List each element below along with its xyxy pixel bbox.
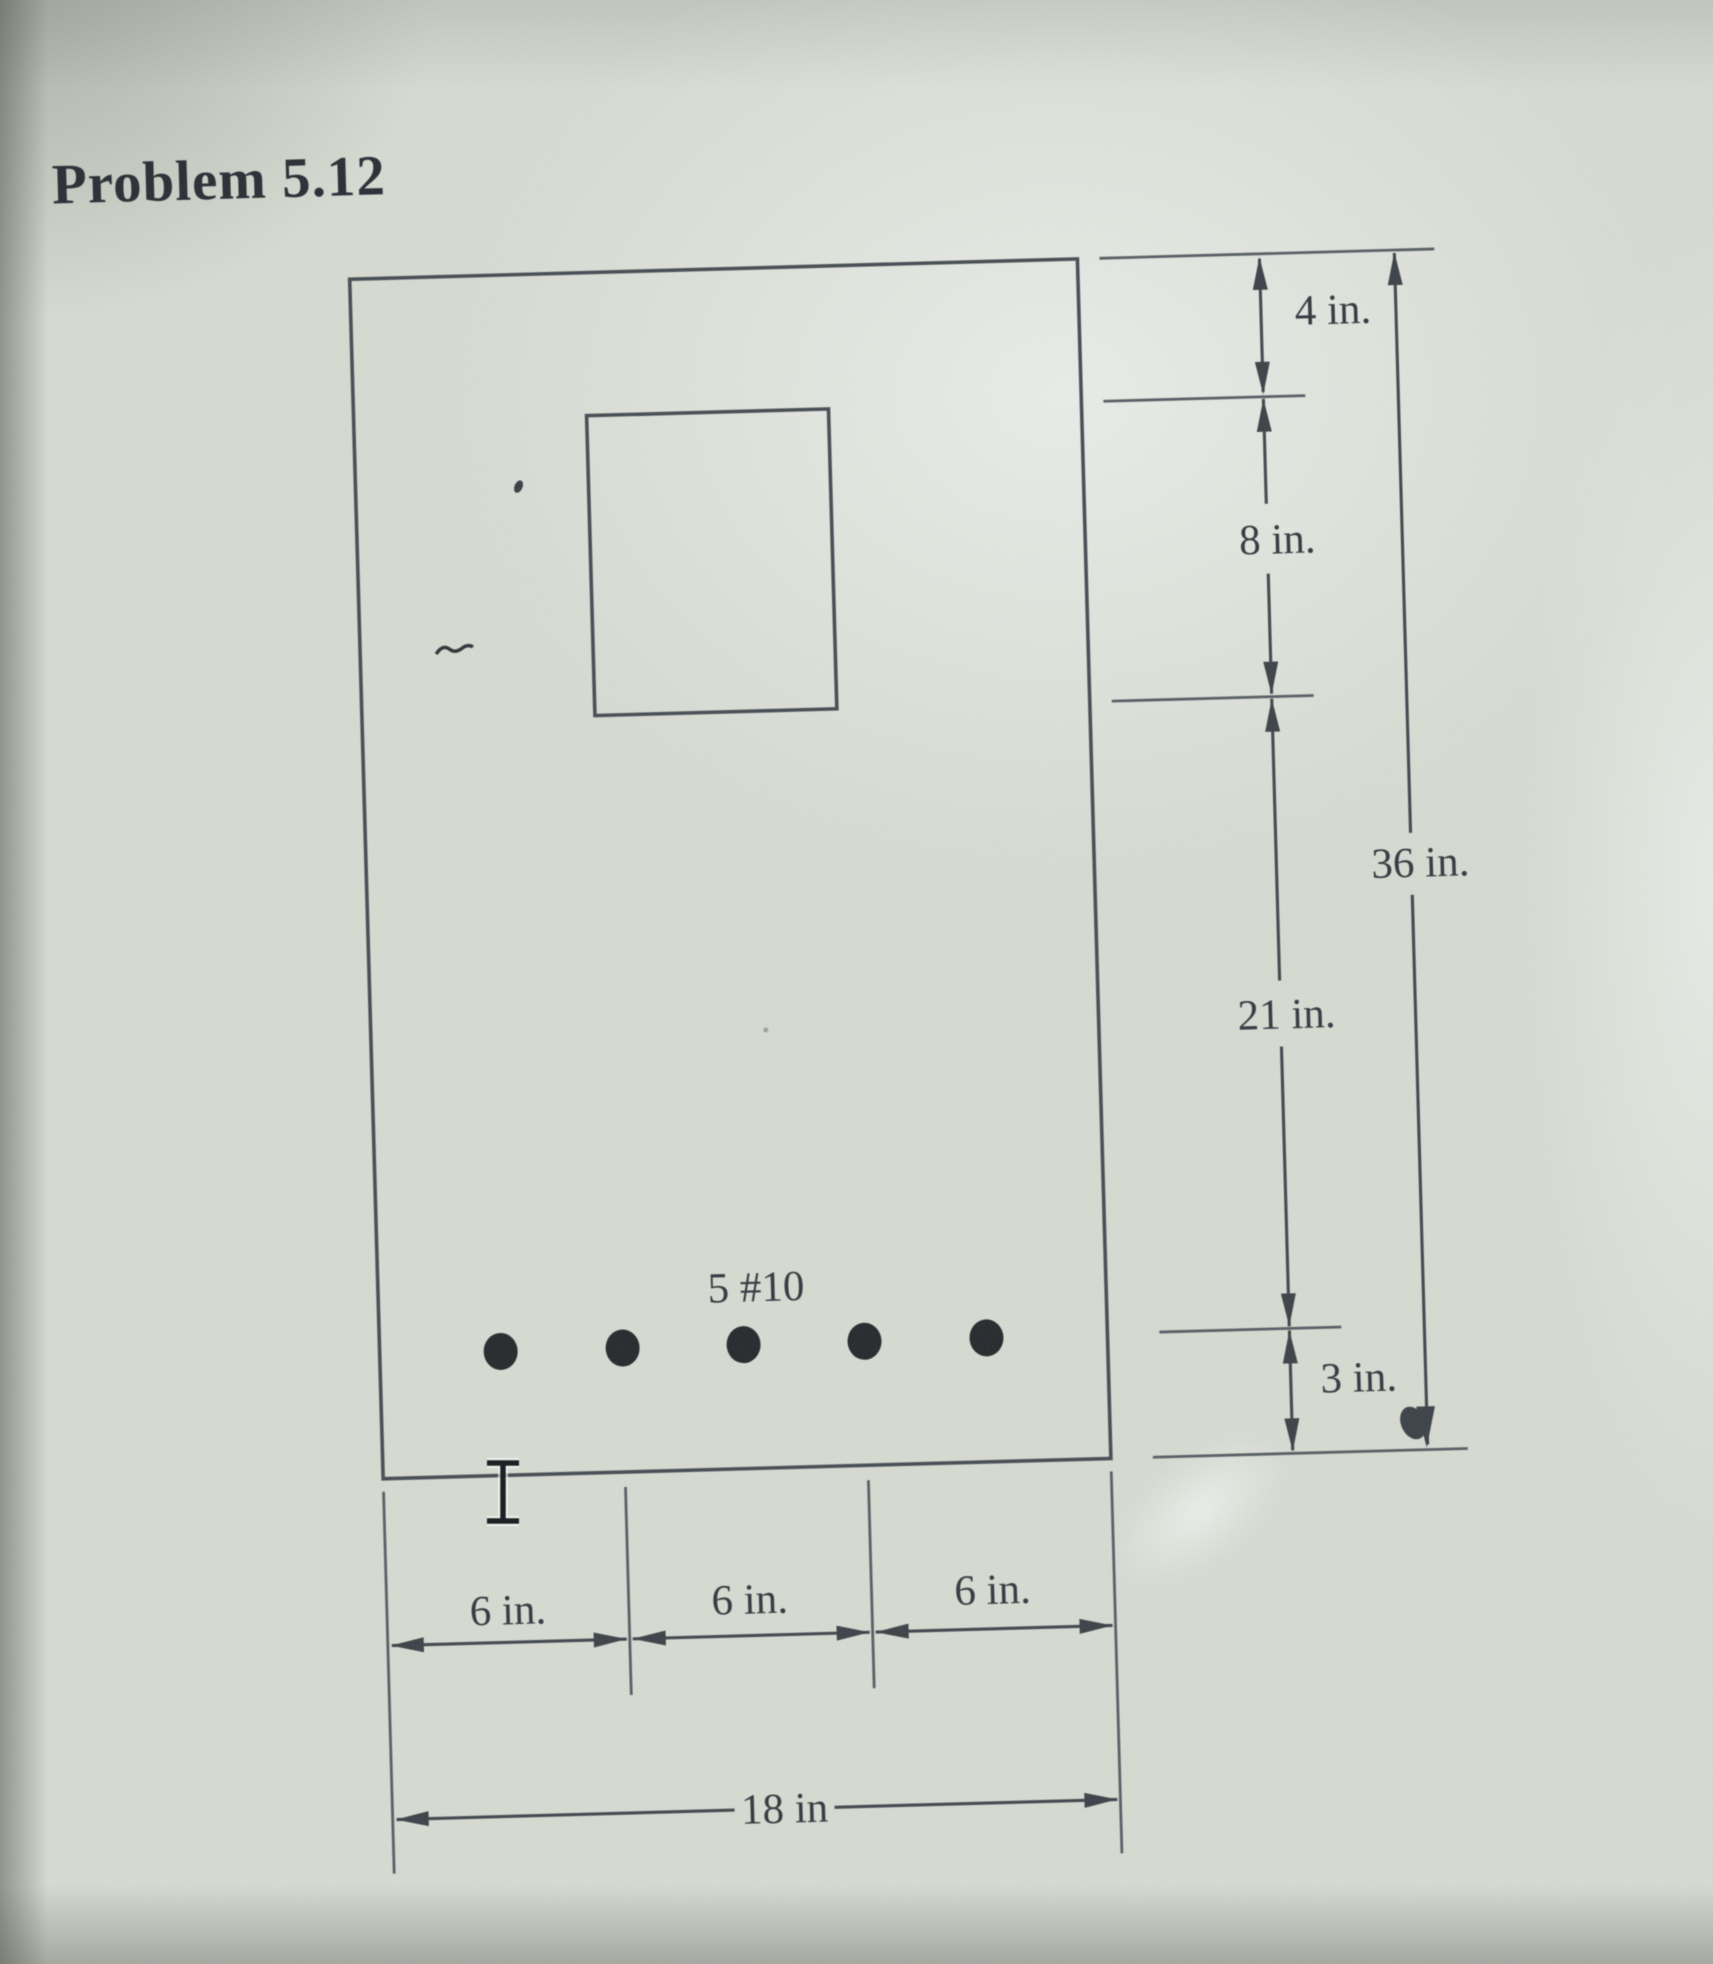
squiggle-artifact — [436, 646, 473, 654]
arrowhead-right-icon — [594, 1632, 627, 1648]
arrowhead-up-icon — [1256, 399, 1272, 432]
extension-line-opening-top — [1103, 396, 1305, 402]
rebar-dot — [483, 1332, 518, 1370]
opening-outline — [587, 409, 837, 716]
textbook-figure-photo: Problem 5.12 5 #10 — [0, 0, 1713, 1964]
arrowhead-down-icon — [1255, 362, 1271, 395]
figure-title: Problem 5.12 — [51, 144, 387, 216]
speck-artifact — [512, 479, 525, 494]
tick-line-6in — [626, 1487, 632, 1695]
dim-label-6in-1: 6 in. — [469, 1586, 547, 1635]
arrowhead-right-icon — [836, 1625, 869, 1641]
rebar-dot — [847, 1322, 882, 1360]
speck-artifact — [763, 1027, 768, 1032]
dimension-line-21in — [1272, 699, 1280, 981]
arrowhead-right-icon — [1084, 1792, 1117, 1808]
extension-line-top — [1099, 249, 1434, 258]
rebar-count-label: 5 #10 — [707, 1263, 805, 1313]
vertical-dimension-chain: 4 in. 8 in. 21 in. 3 in. — [1099, 248, 1485, 1457]
tick-line-12in — [868, 1480, 874, 1688]
figure-ink: Problem 5.12 5 #10 — [51, 115, 1497, 1882]
arrowhead-up-icon — [1252, 257, 1268, 290]
arrowhead-left-icon — [395, 1811, 428, 1827]
dimension-line-18in — [397, 1810, 735, 1819]
dimension-line-6in-1 — [392, 1639, 627, 1646]
arrowhead-left-icon — [633, 1630, 666, 1646]
i-beam-cursor-icon — [487, 1463, 519, 1521]
dim-label-36in: 36 in. — [1371, 838, 1470, 888]
dimension-line-6in-3 — [876, 1625, 1113, 1632]
dim-label-3in: 3 in. — [1320, 1353, 1398, 1402]
arrowhead-down-icon — [1281, 1293, 1297, 1326]
rebar-dot — [605, 1329, 640, 1367]
dimension-line-21in — [1281, 1047, 1289, 1327]
arrowhead-right-icon — [1079, 1618, 1112, 1634]
dimension-line-36in — [1412, 895, 1427, 1445]
arrowhead-up-icon — [1387, 252, 1403, 285]
arrowhead-down-icon — [1263, 661, 1279, 694]
rebar-dots — [483, 1319, 1004, 1371]
arrowhead-left-icon — [875, 1624, 908, 1640]
rebar-dot — [969, 1319, 1004, 1357]
dim-label-21in: 21 in. — [1237, 990, 1336, 1040]
dimension-line-36in — [1394, 253, 1410, 833]
dim-label-4in: 4 in. — [1294, 286, 1372, 335]
arrowhead-down-icon — [1284, 1418, 1300, 1451]
extension-line-rebar-level — [1159, 1327, 1341, 1332]
horizontal-dimension-chain: 6 in. 6 in. 6 in. 18 in — [384, 1471, 1122, 1873]
dim-label-6in-2: 6 in. — [711, 1576, 789, 1625]
extension-line-left — [384, 1492, 395, 1874]
rebar-dot — [726, 1326, 761, 1364]
arrowhead-up-icon — [1264, 698, 1280, 731]
arrowhead-left-icon — [391, 1637, 424, 1653]
dimension-line-6in-2 — [633, 1632, 870, 1639]
extension-line-opening-bottom — [1112, 695, 1314, 701]
extension-line-right — [1111, 1471, 1122, 1853]
dim-label-18in: 18 in — [740, 1784, 828, 1833]
dimension-line-18in — [835, 1799, 1118, 1807]
beam-cross-section-figure: Problem 5.12 5 #10 — [0, 0, 1713, 1964]
arrowhead-up-icon — [1282, 1330, 1298, 1363]
dim-label-6in-3: 6 in. — [954, 1566, 1032, 1615]
dim-label-8in: 8 in. — [1238, 515, 1316, 564]
extension-line-bottom — [1153, 1448, 1468, 1457]
